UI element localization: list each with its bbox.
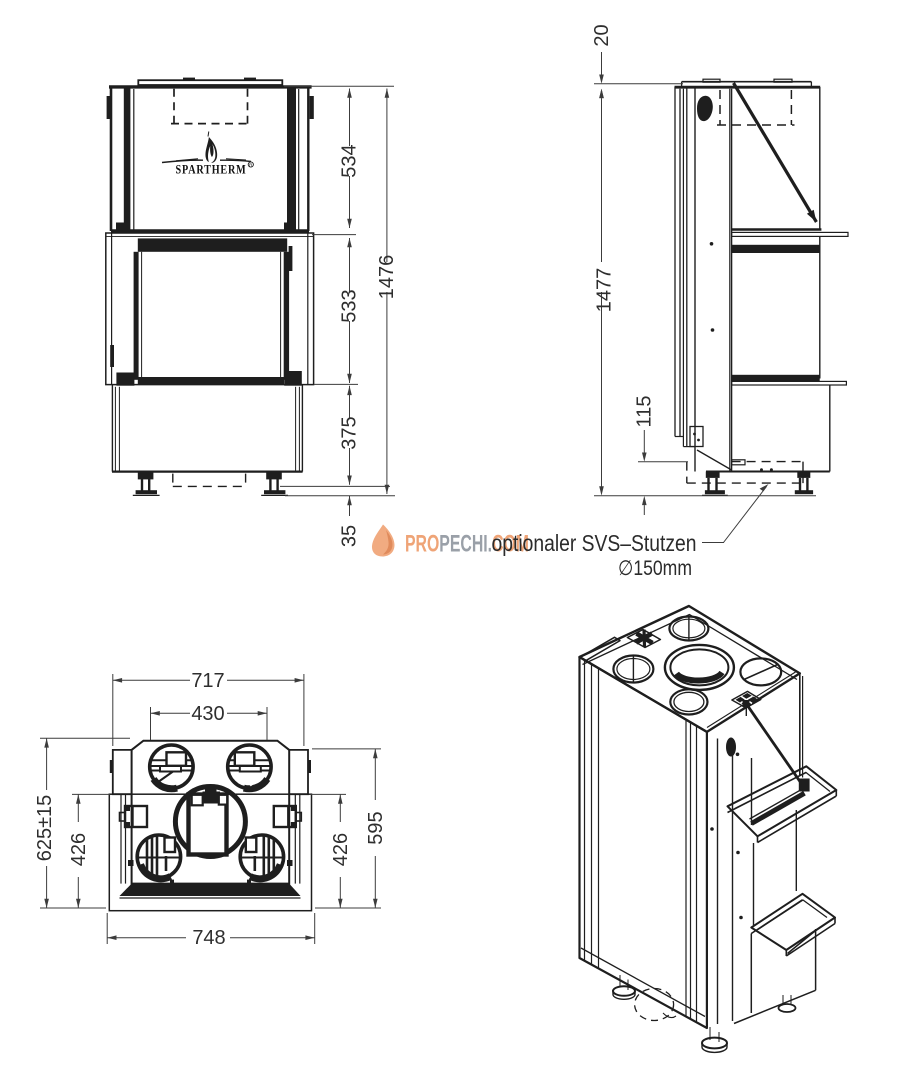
svg-text:optionaler SVS–Stutzen: optionaler SVS–Stutzen (492, 530, 697, 556)
svg-text:SPARTHERM: SPARTHERM (176, 163, 247, 177)
svg-text:1476: 1476 (376, 255, 398, 300)
svg-text:115: 115 (634, 396, 656, 428)
svg-text:533: 533 (339, 289, 361, 322)
svg-text:35: 35 (339, 525, 361, 547)
svg-text:20: 20 (591, 24, 613, 46)
svg-text:426: 426 (68, 833, 90, 866)
svg-text:748: 748 (192, 927, 225, 949)
svg-text:426: 426 (330, 833, 352, 866)
svg-text:1477: 1477 (594, 268, 616, 313)
svg-text:625±15: 625±15 (34, 795, 56, 862)
svg-text:534: 534 (339, 144, 361, 177)
svg-text:∅150mm: ∅150mm (618, 557, 692, 580)
svg-text:717: 717 (191, 670, 224, 692)
svg-text:595: 595 (365, 811, 387, 844)
svg-text:375: 375 (339, 416, 361, 449)
svg-text:430: 430 (191, 703, 224, 725)
